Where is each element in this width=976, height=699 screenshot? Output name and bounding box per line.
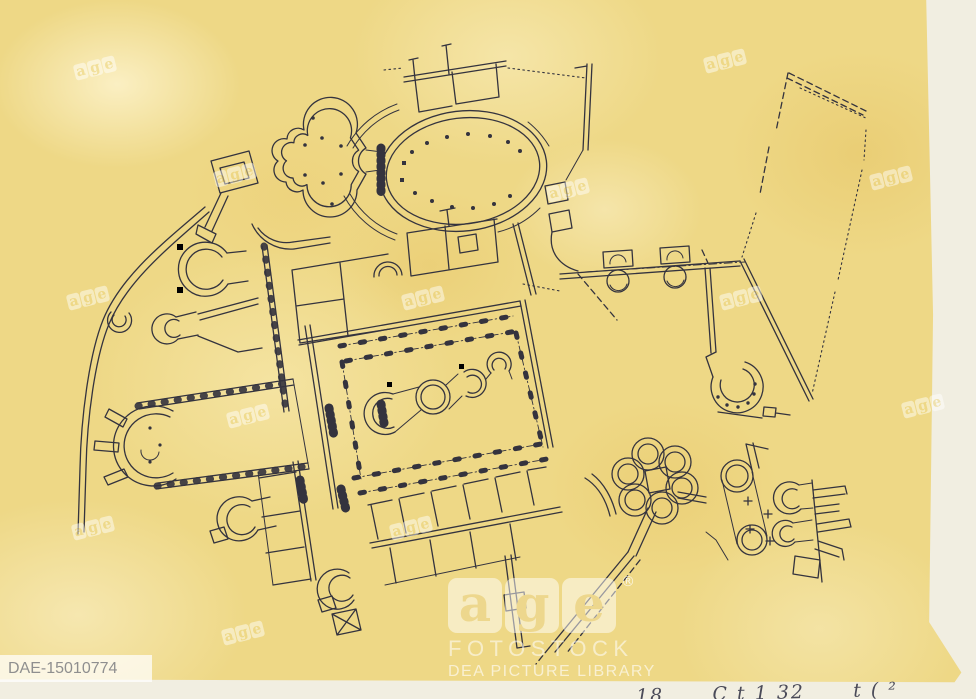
aqueduct	[536, 508, 656, 664]
catalog-id: DAE-15010774	[0, 660, 117, 678]
north-rooms	[384, 44, 592, 150]
exedra	[706, 352, 790, 418]
scanned-photo: age age age age age age age age age age …	[0, 0, 976, 699]
quatrefoil-hall	[272, 97, 382, 217]
east-wall-rooms	[545, 150, 583, 271]
east-villa	[678, 443, 851, 582]
central-peristyle	[298, 300, 553, 510]
great-hall-west	[94, 379, 309, 489]
floor-plan-drawing	[0, 0, 976, 699]
catalog-id-strip: DAE-15010774	[0, 655, 152, 682]
hexafoil-hall	[612, 438, 698, 524]
gate-tower	[196, 151, 258, 243]
central-pool	[364, 352, 512, 434]
northeast-courtyard	[702, 73, 868, 401]
